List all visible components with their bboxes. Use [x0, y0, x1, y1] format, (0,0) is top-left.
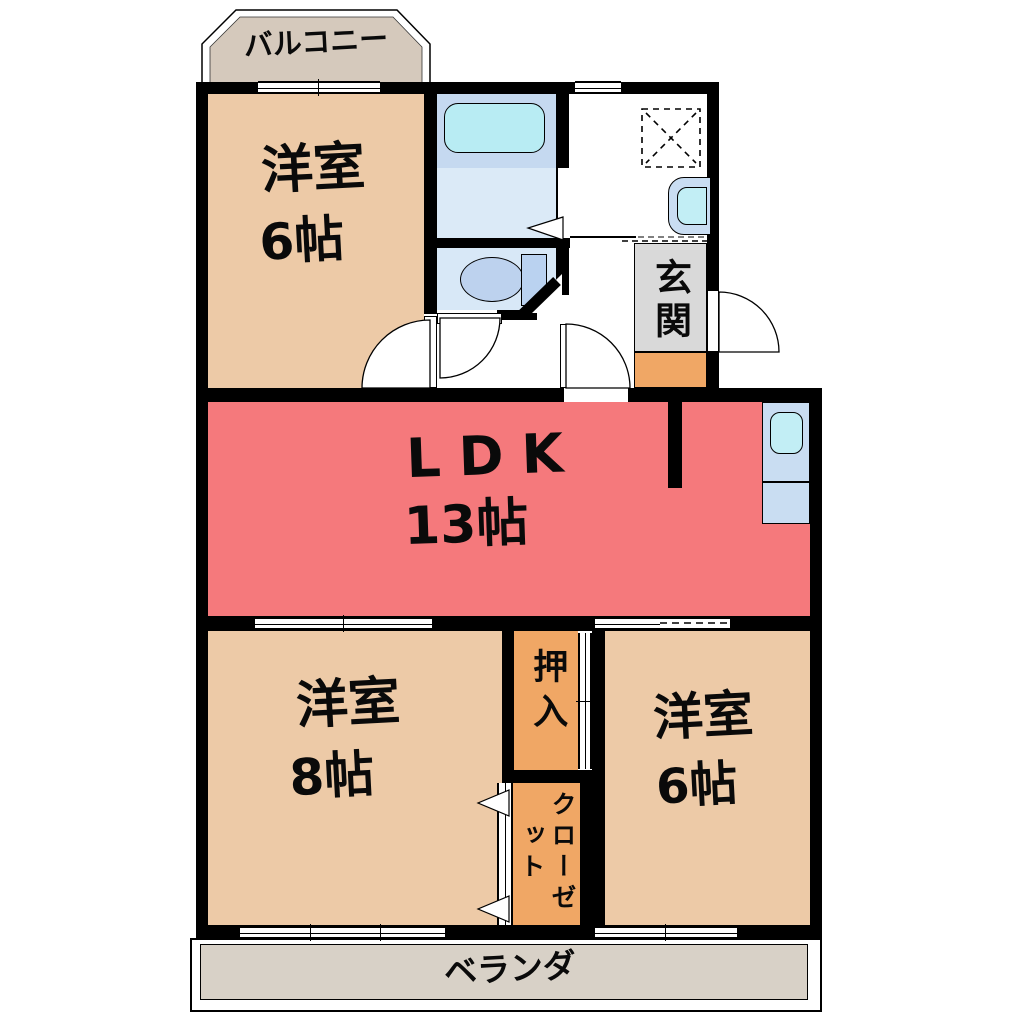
toilet-door-arc [440, 318, 500, 378]
wall-left [196, 82, 208, 940]
window-tick [380, 924, 381, 941]
wall-bed-bath-divider [424, 94, 437, 314]
closet-label: クローゼット [516, 788, 578, 918]
closet-sliding-door [497, 783, 513, 925]
room-name: LDK [328, 419, 660, 493]
front-door-arc [719, 292, 779, 352]
wall-washroom-bottom [424, 238, 570, 248]
ldk-bed8-sliding-door [255, 617, 432, 630]
room-name: 洋室 [597, 683, 810, 751]
window-tick [318, 79, 319, 96]
window-midline [575, 88, 621, 89]
wall-right-lower [810, 388, 822, 940]
room-size: 13帖 [330, 491, 602, 560]
washing-room-bottom-line [570, 236, 636, 238]
toilet-bowl [460, 257, 524, 302]
window-tick [665, 924, 666, 941]
floor-plan: バルコニー 洋室 6帖 LDK 13帖 洋室 8帖 洋室 6帖 玄関 押入 クロ… [0, 0, 1020, 1020]
washing-room-window [575, 81, 621, 94]
entrance-label: 玄関 [648, 258, 691, 344]
room-size: 8帖 [226, 742, 439, 810]
bedroom-top-door-leaf [424, 316, 437, 388]
front-door-leaf [707, 290, 719, 352]
window-tick [310, 924, 311, 941]
bathtub [444, 103, 545, 153]
bedroom-bottom-left-label: 洋室 8帖 [222, 669, 478, 811]
wall-bath-right [556, 94, 569, 168]
oshiire-label: 押入 [527, 648, 567, 738]
entrance-step [634, 352, 707, 388]
ldk-bed6-sliding-door [595, 617, 730, 630]
room-name: 洋室 [212, 135, 415, 205]
balcony-window [258, 81, 380, 94]
room-size: 6帖 [601, 753, 794, 818]
ldk-label: LDK 13帖 [328, 419, 662, 560]
washroom-right-line [556, 168, 558, 238]
wall-toilet-right [556, 245, 569, 295]
window-tick [576, 701, 593, 702]
window-midline [505, 783, 506, 925]
window-midline [258, 88, 380, 89]
hall-ldk-door-leaf [560, 324, 569, 388]
wall-oshiire-left [502, 616, 514, 783]
wash-basin-bowl [677, 187, 707, 225]
kitchen-counter-bottom [762, 482, 810, 524]
room-name: 洋室 [222, 669, 475, 742]
bedroom-bottom-right-label: 洋室 6帖 [597, 683, 813, 819]
balcony-label: バルコニー [227, 21, 405, 64]
oshiire-sliding-door [578, 633, 592, 769]
hall-ldk-door-arc [566, 324, 630, 388]
washing-machine-pan [642, 109, 700, 167]
toilet-door-leaf [437, 313, 502, 324]
window-midline [240, 933, 445, 934]
window-midline [595, 624, 660, 625]
window-midline [595, 933, 737, 934]
wall-ldk-top [196, 388, 822, 402]
kitchen-sink [770, 412, 803, 454]
bedroom-top-left-label: 洋室 6帖 [212, 135, 418, 275]
bed8-window [240, 926, 445, 939]
toilet-tank [521, 254, 547, 306]
hall-ldk-door-gap [564, 388, 628, 402]
window-tick [343, 615, 344, 632]
room-size: 6帖 [216, 208, 389, 274]
wall-ldk-stub [668, 402, 682, 488]
wall-toilet-bottom [497, 310, 537, 320]
bed6-window [595, 926, 737, 939]
washroom-floor [437, 168, 556, 238]
